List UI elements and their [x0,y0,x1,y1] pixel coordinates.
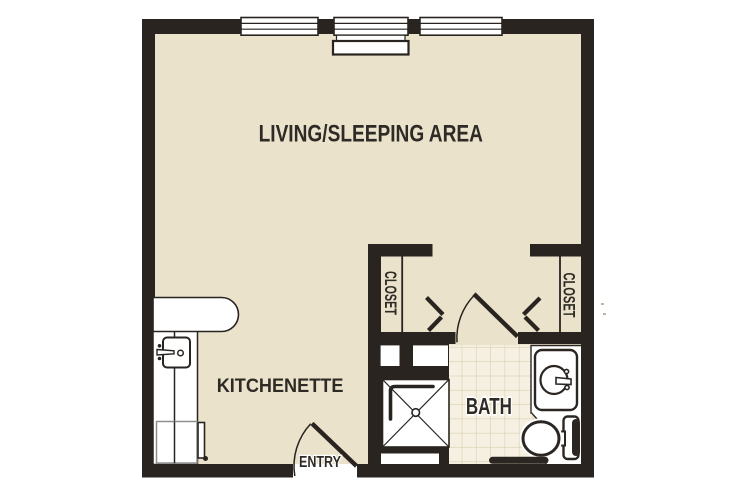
svg-text:CLOSET: CLOSET [381,271,400,315]
svg-text:ENTRY: ENTRY [299,454,341,471]
svg-text:KITCHENETTE: KITCHENETTE [217,375,344,397]
svg-text:LIVING/SLEEPING AREA: LIVING/SLEEPING AREA [259,121,483,148]
svg-text:CLOSET: CLOSET [560,273,579,318]
svg-text:BATH: BATH [466,393,512,419]
